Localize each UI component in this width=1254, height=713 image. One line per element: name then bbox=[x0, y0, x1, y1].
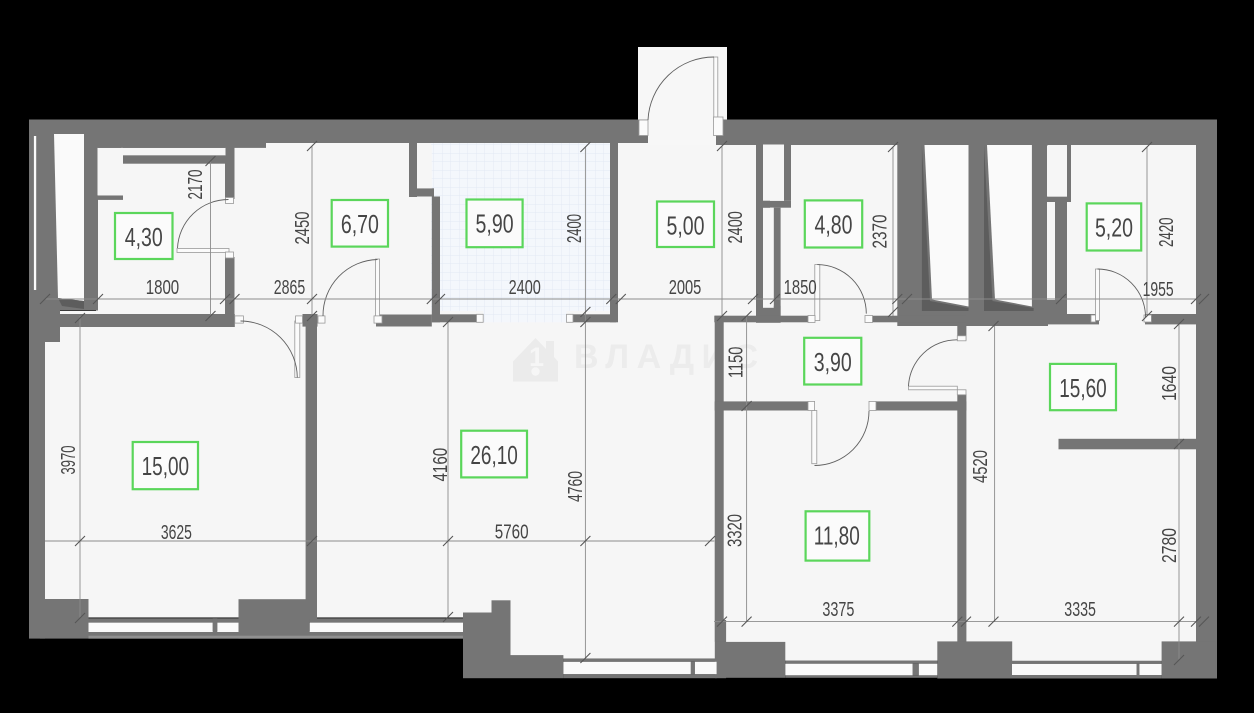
svg-text:1800: 1800 bbox=[146, 276, 179, 299]
svg-text:2370: 2370 bbox=[868, 214, 891, 248]
svg-text:3375: 3375 bbox=[822, 597, 854, 620]
svg-text:2400: 2400 bbox=[562, 214, 586, 243]
svg-text:2780: 2780 bbox=[1157, 528, 1181, 563]
svg-text:2400: 2400 bbox=[724, 211, 747, 243]
svg-text:4520: 4520 bbox=[969, 450, 992, 483]
svg-text:2865: 2865 bbox=[274, 275, 306, 298]
svg-text:11,80: 11,80 bbox=[814, 522, 860, 550]
svg-text:3,90: 3,90 bbox=[814, 347, 852, 376]
svg-text:2170: 2170 bbox=[183, 169, 207, 199]
svg-text:1150: 1150 bbox=[724, 347, 747, 378]
svg-text:2450: 2450 bbox=[291, 211, 314, 244]
svg-text:4,30: 4,30 bbox=[125, 223, 163, 252]
svg-text:5,90: 5,90 bbox=[476, 209, 514, 238]
svg-text:4,80: 4,80 bbox=[815, 210, 853, 239]
svg-text:4160: 4160 bbox=[429, 448, 452, 482]
svg-text:15,60: 15,60 bbox=[1059, 374, 1106, 402]
svg-text:3320: 3320 bbox=[723, 514, 746, 547]
svg-text:6,70: 6,70 bbox=[341, 210, 379, 239]
svg-text:2400: 2400 bbox=[509, 276, 541, 299]
svg-text:4760: 4760 bbox=[563, 471, 586, 502]
svg-text:5760: 5760 bbox=[495, 520, 529, 543]
svg-text:3335: 3335 bbox=[1064, 597, 1096, 620]
svg-text:2420: 2420 bbox=[1154, 218, 1178, 247]
svg-text:2005: 2005 bbox=[669, 276, 702, 299]
svg-text:3970: 3970 bbox=[56, 446, 80, 475]
svg-text:5,00: 5,00 bbox=[667, 211, 705, 240]
svg-text:1955: 1955 bbox=[1143, 277, 1174, 300]
svg-text:3625: 3625 bbox=[161, 520, 192, 543]
svg-text:26,10: 26,10 bbox=[470, 441, 517, 469]
svg-text:5,20: 5,20 bbox=[1095, 213, 1133, 242]
svg-text:1640: 1640 bbox=[1157, 366, 1181, 401]
svg-text:1850: 1850 bbox=[784, 276, 817, 299]
svg-text:15,00: 15,00 bbox=[142, 453, 189, 481]
